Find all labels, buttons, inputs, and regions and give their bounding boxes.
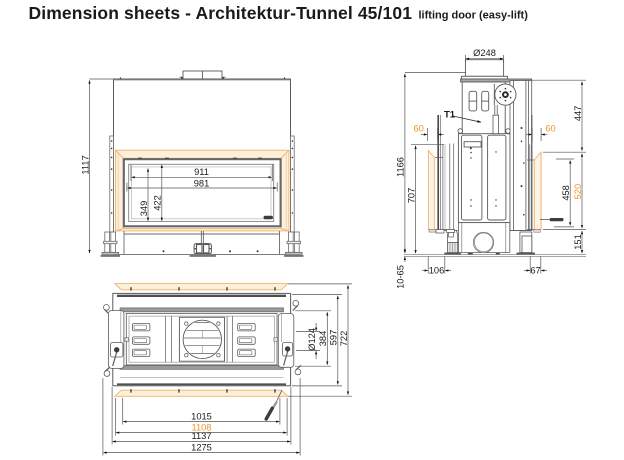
- svg-text:911: 911: [194, 167, 209, 177]
- svg-text:384: 384: [318, 331, 328, 347]
- svg-text:707: 707: [406, 188, 416, 204]
- svg-text:1166: 1166: [396, 157, 406, 177]
- svg-text:981: 981: [194, 179, 210, 189]
- svg-text:Ø124: Ø124: [307, 328, 317, 351]
- svg-text:T1: T1: [444, 109, 456, 120]
- svg-text:447: 447: [573, 106, 583, 122]
- svg-text:349: 349: [139, 201, 149, 217]
- svg-text:151: 151: [573, 234, 583, 250]
- svg-text:722: 722: [339, 331, 349, 347]
- svg-text:1117: 1117: [80, 155, 90, 174]
- svg-text:106: 106: [429, 266, 445, 276]
- svg-text:10-65: 10-65: [396, 265, 406, 289]
- svg-text:1137: 1137: [192, 431, 212, 441]
- svg-text:Ø248: Ø248: [473, 48, 496, 58]
- svg-text:422: 422: [153, 195, 163, 211]
- svg-text:520: 520: [573, 184, 583, 200]
- svg-text:60: 60: [414, 124, 424, 134]
- svg-text:67: 67: [530, 266, 540, 276]
- svg-text:1275: 1275: [191, 442, 212, 452]
- svg-text:1015: 1015: [191, 411, 212, 421]
- svg-text:lifting door (easy-lift): lifting door (easy-lift): [419, 10, 529, 22]
- svg-text:60: 60: [545, 124, 555, 134]
- svg-text:458: 458: [561, 185, 571, 201]
- svg-text:597: 597: [329, 330, 339, 346]
- svg-text:Dimension sheets - Architektur: Dimension sheets - Architektur-Tunnel 45…: [29, 3, 413, 23]
